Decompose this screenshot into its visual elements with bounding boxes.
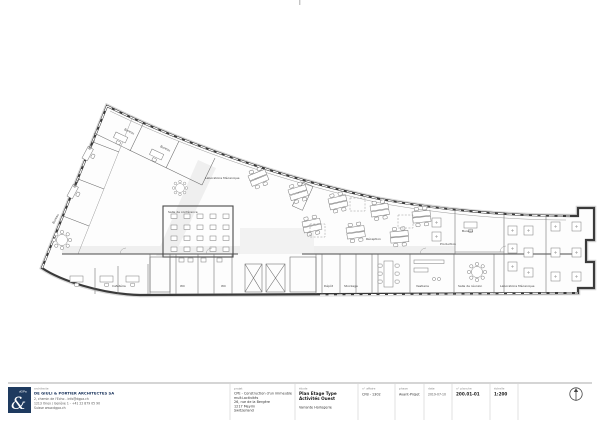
project-info: projet CPE - Construction d'un immeuble … [234,387,292,413]
architect-address-2: 1213 Onex / Genève 1 - +41 22 879 05 90 [34,402,100,406]
room-label: Salle de réunion [458,284,482,288]
date-label: date [428,387,435,391]
project-label: projet [234,387,243,391]
planche-value: 200.01-01 [456,392,480,397]
project-line-5: Switzerland [234,409,254,413]
lobby-area [240,228,314,254]
building-plan: BureauBureauBureauBureauBureauLaboratoir… [42,106,594,295]
affaire-label: n° affaire [362,387,376,391]
room-label: Bureau [462,229,473,233]
room-label: Salle de conférence [168,210,198,214]
architect-info: architecte DE GIULI & PORTIER ARCHITECTE… [34,387,114,411]
planche-label: n° planche [456,387,472,391]
study-label: étude [299,387,308,391]
field-affaire: n° affaire CFB - 1302 [362,387,381,397]
logo-glyph: & [11,394,26,414]
echelle-value: 1:200 [494,392,507,397]
phase-value: Avant-Projet [399,393,420,397]
crop-mark [299,0,300,5]
affaire-value: CFB - 1302 [362,393,381,397]
room-label: Stockage [344,284,358,288]
cafeteria-table [378,261,399,287]
room-label: Cafétéria [112,284,126,288]
title-block: & dGPa architecte DE GIULI & PORTIER ARC… [8,383,592,420]
architect-logo: & dGPa [8,387,31,414]
architect-address-1: 2, chemin de l'Echo - info@dgpa.ch [34,397,89,401]
room-label: WC [180,284,185,288]
phase-label: phase [399,387,408,391]
field-planche: n° planche 200.01-01 [456,387,480,397]
study-info: étude Plan Etage Type Activités Ouest Va… [299,387,337,410]
date-value: 2019-07-10 [428,393,446,397]
room-label: Dépôt [324,284,334,288]
field-date: date 2019-07-10 [428,387,446,397]
logo-text: dGPa [19,390,27,394]
field-echelle: échelle 1:200 [494,387,507,397]
room-label: Vestiaire [416,284,429,288]
study-variant: Variante Horlogerie [299,406,332,410]
architect-address-3: Suisse www.dgpa.ch [34,406,66,410]
north-arrow-icon [570,388,582,401]
room-label: Laboratoire Mécanique [205,176,240,180]
study-line-2: Activités Ouest [299,396,335,401]
floor-plan-svg: BureauBureauBureauBureauBureauLaboratoir… [0,0,600,424]
field-phase: phase Avant-Projet [399,387,420,397]
drawing-sheet: BureauBureauBureauBureauBureauLaboratoir… [0,0,600,424]
room-label: WC [221,284,226,288]
room-label: Réception [366,237,381,241]
architect-name: DE GIULI & PORTIER ARCHITECTES SA [34,391,114,396]
room-label: Production [440,242,456,246]
room-label: Laboratoire Mécanique [500,284,535,288]
echelle-label: échelle [494,387,505,391]
